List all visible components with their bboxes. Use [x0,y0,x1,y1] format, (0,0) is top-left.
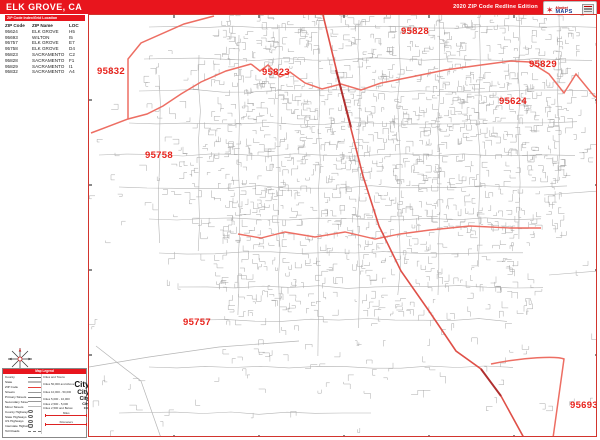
legend-sample-street3 [28,406,41,407]
map-legend: Map Legend CountyStateZIP CodeStreetsPri… [2,368,87,438]
legend-sample-street [28,392,41,393]
legend-city-item: Cities 10,000 - 50,000City [43,389,89,396]
legend-sample-hwyi [28,424,33,428]
legend-city-items: Cities 50,000 and AboveCityCities 10,000… [43,380,89,410]
table-row: 95832SACRAMENTOA4 [5,69,85,75]
edition-label: 2020 ZIP Code Redline Edition [453,4,538,10]
scale-bar-kilometers: Kilometers [43,421,89,427]
legend-sample-street2 [28,401,41,402]
legend-city-header: Cities and Towns [43,375,89,379]
legend-sample-line [28,377,41,378]
legend-sample-zip [28,387,41,388]
legend-sample-street1 [28,397,41,398]
title-banner: ELK GROVE, CA 2020 ZIP Code Redline Edit… [0,0,600,14]
legend-sample-toll [28,431,41,432]
legend-line-items: CountyStateZIP CodeStreetsPrimary Street… [3,374,41,434]
zip-index-table: ZIP Code Index/Grid Location ZIP Code ZI… [5,15,85,75]
legend-sample-hwy [28,415,33,419]
legend-sample-hwy [28,410,33,414]
zip-code-label: 95829 [529,60,557,70]
zip-code-label: 95823 [262,68,290,78]
zip-code-label: 95828 [401,27,429,37]
legend-city-item: Cities 2,500 and BelowCity [43,406,89,410]
zip-index-rows: 95624ELK GROVEH595693WILTONI595757ELK GR… [5,29,85,75]
page-title: ELK GROVE, CA [6,2,82,12]
legend-sample-state [28,381,41,383]
zip-code-label: 95757 [183,318,211,328]
map-canvas [89,15,597,437]
map-poster-page: ELK GROVE, CA 2020 ZIP Code Redline Edit… [0,0,600,440]
legend-city-item: Cities 50,000 and AboveCity [43,380,89,389]
map-area: 9583295823958289582995624957589575795693 [88,14,597,437]
legend-item: Toll Roads [5,429,41,434]
scale-bar-miles: Miles [43,412,89,418]
zip-code-label: 95758 [145,151,173,161]
zip-index-title: ZIP Code Index/Grid Location [5,15,85,21]
legend-sample-hwy [28,420,33,424]
zip-code-label: 95832 [97,67,125,77]
zip-code-label: 95624 [499,97,527,107]
zip-code-label: 95693 [570,401,597,411]
